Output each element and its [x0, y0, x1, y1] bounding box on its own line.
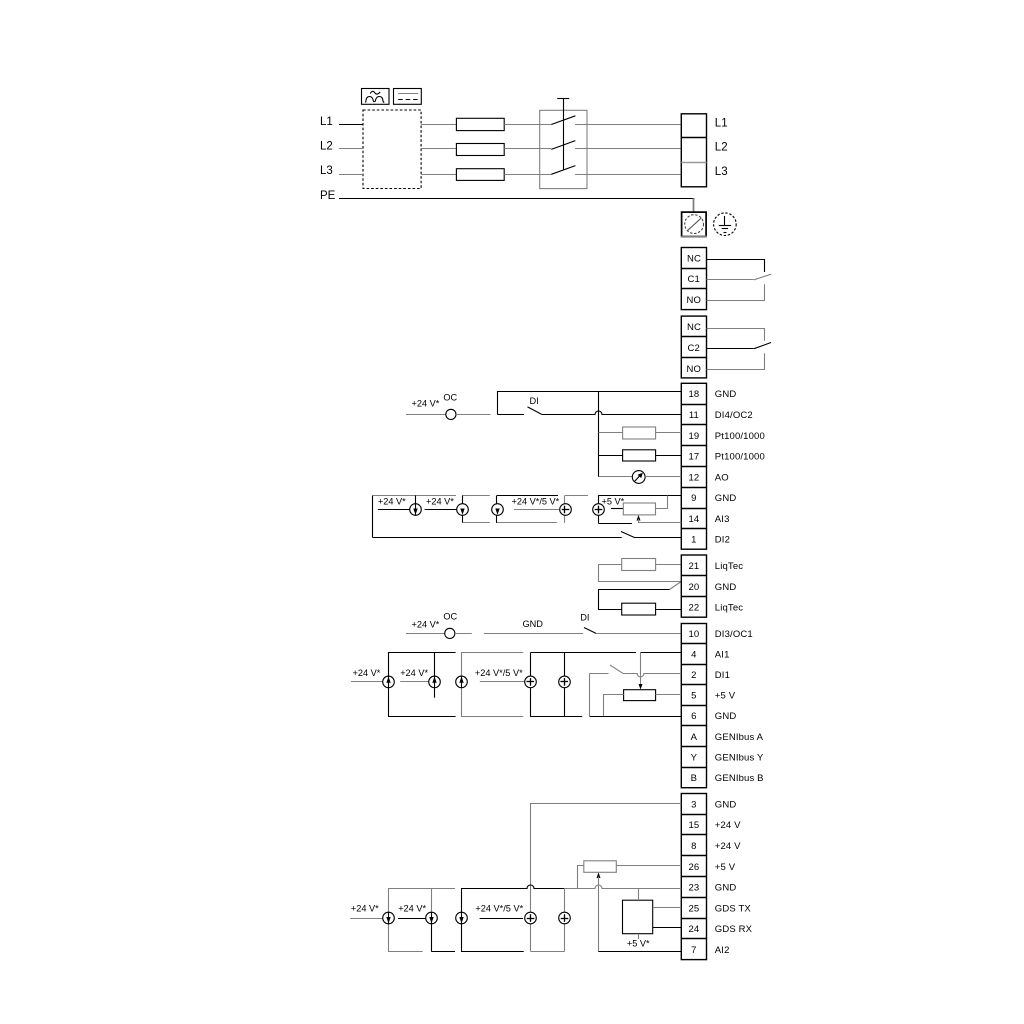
svg-text:4: 4: [691, 649, 696, 660]
svg-text:GND: GND: [523, 619, 544, 629]
svg-text:19: 19: [688, 431, 699, 442]
svg-text:A: A: [691, 732, 698, 743]
svg-text:DI4/OC2: DI4/OC2: [715, 410, 753, 421]
svg-text:GND: GND: [715, 389, 737, 400]
svg-text:1: 1: [691, 535, 696, 546]
svg-text:L3: L3: [320, 165, 333, 177]
svg-text:NC: NC: [687, 253, 701, 264]
svg-text:DI2: DI2: [715, 535, 730, 546]
svg-text:+24 V*: +24 V*: [426, 497, 454, 507]
svg-text:L2: L2: [715, 142, 728, 154]
svg-text:AI3: AI3: [715, 514, 730, 525]
svg-text:NC: NC: [687, 322, 701, 333]
svg-text:9: 9: [691, 493, 696, 504]
svg-text:+24 V*: +24 V*: [412, 399, 440, 409]
svg-text:7: 7: [691, 945, 696, 956]
svg-text:20: 20: [688, 582, 699, 593]
svg-text:GND: GND: [715, 582, 737, 593]
svg-text:+24 V*: +24 V*: [412, 619, 440, 629]
svg-text:22: 22: [688, 603, 699, 614]
svg-text:GND: GND: [715, 799, 737, 810]
svg-text:DI1: DI1: [715, 670, 730, 681]
svg-text:C1: C1: [688, 274, 700, 285]
svg-text:Y: Y: [691, 752, 698, 763]
svg-text:26: 26: [688, 862, 699, 873]
svg-text:DI3/OC1: DI3/OC1: [715, 629, 753, 640]
svg-text:PE: PE: [320, 190, 336, 202]
svg-text:+5 V: +5 V: [715, 862, 736, 873]
svg-text:2: 2: [691, 670, 696, 681]
svg-text:GENIbus Y: GENIbus Y: [715, 752, 764, 763]
svg-text:NO: NO: [687, 364, 702, 375]
svg-text:5: 5: [691, 691, 696, 702]
svg-text:AO: AO: [715, 472, 729, 483]
svg-text:GND: GND: [715, 493, 737, 504]
svg-text:12: 12: [688, 472, 699, 483]
svg-text:L2: L2: [320, 141, 333, 153]
svg-text:+24 V*/5 V*: +24 V*/5 V*: [475, 668, 523, 678]
svg-text:Pt100/1000: Pt100/1000: [715, 452, 765, 463]
svg-text:17: 17: [688, 452, 699, 463]
svg-text:AI1: AI1: [715, 649, 730, 660]
svg-text:LiqTec: LiqTec: [715, 603, 743, 614]
svg-text:21: 21: [688, 561, 699, 572]
svg-text:18: 18: [688, 389, 699, 400]
svg-text:+24 V*: +24 V*: [398, 904, 426, 914]
svg-text:Pt100/1000: Pt100/1000: [715, 431, 765, 442]
svg-text:B: B: [691, 773, 698, 784]
svg-text:GND: GND: [715, 883, 737, 894]
svg-text:15: 15: [688, 820, 699, 831]
svg-text:+5 V*: +5 V*: [627, 939, 650, 949]
svg-text:C2: C2: [688, 343, 700, 354]
svg-text:+24 V*/5 V*: +24 V*/5 V*: [475, 904, 523, 914]
svg-text:25: 25: [688, 903, 699, 914]
svg-text:3: 3: [691, 799, 696, 810]
svg-text:AI2: AI2: [715, 945, 730, 956]
svg-text:8: 8: [691, 841, 696, 852]
svg-text:DI: DI: [530, 396, 539, 406]
svg-text:GDS TX: GDS TX: [715, 903, 752, 914]
svg-text:+24 V: +24 V: [715, 841, 741, 852]
svg-text:14: 14: [688, 514, 699, 525]
svg-text:L1: L1: [715, 117, 728, 129]
svg-text:10: 10: [688, 629, 699, 640]
svg-text:GENIbus A: GENIbus A: [715, 732, 764, 743]
svg-text:+24 V*: +24 V*: [378, 497, 406, 507]
svg-text:GND: GND: [715, 711, 737, 722]
svg-text:+24 V*: +24 V*: [351, 904, 379, 914]
svg-text:+5 V: +5 V: [715, 691, 736, 702]
svg-text:6: 6: [691, 711, 696, 722]
svg-text:OC: OC: [443, 612, 457, 622]
svg-text:NO: NO: [687, 295, 702, 306]
svg-text:LiqTec: LiqTec: [715, 561, 743, 572]
svg-text:+5 V*: +5 V*: [602, 497, 625, 507]
svg-text:+24 V*: +24 V*: [400, 668, 428, 678]
svg-text:OC: OC: [443, 393, 457, 403]
svg-text:+24 V*: +24 V*: [353, 668, 381, 678]
svg-text:L1: L1: [320, 116, 333, 128]
svg-text:DI: DI: [580, 613, 589, 623]
svg-text:23: 23: [688, 883, 699, 894]
svg-text:GENIbus B: GENIbus B: [715, 773, 764, 784]
svg-text:+24 V*/5 V*: +24 V*/5 V*: [512, 497, 560, 507]
svg-text:GDS RX: GDS RX: [715, 924, 753, 935]
svg-text:24: 24: [688, 924, 699, 935]
svg-text:L3: L3: [715, 166, 728, 178]
svg-text:11: 11: [689, 410, 699, 421]
svg-text:+24 V: +24 V: [715, 820, 741, 831]
